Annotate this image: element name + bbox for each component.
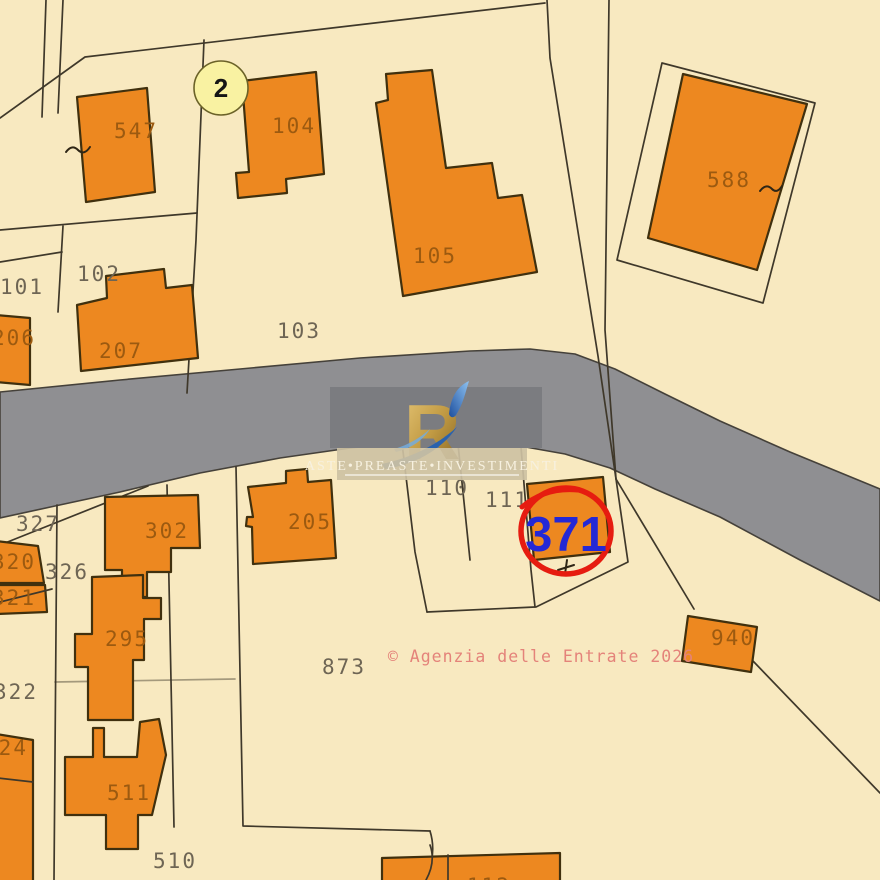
parcel-label: 510 [153,849,197,873]
cadastral-map: © Agenzia delle Entrate 2026 547 104 105… [0,0,880,880]
building-label: 324 [0,736,28,760]
building-label: 205 [288,510,332,534]
building-label: 588 [707,168,751,192]
building-label: 207 [99,339,143,363]
parcel-label: 322 [0,680,38,704]
parcel-label: 326 [45,560,89,584]
point-marker: 2 [194,61,248,115]
watermark-brand-text: ASTE•PREASTE•INVESTIMENTI [305,459,559,474]
building-label: 105 [413,244,457,268]
building-547 [77,88,155,202]
parcel-label: 103 [277,319,321,343]
parcel-label: 327 [16,512,60,536]
highlight-parcel-number: 371 [525,508,607,562]
building-label: 295 [105,627,149,651]
marker-number: 2 [214,73,228,103]
brand-watermark: R ASTE•PREASTE•INVESTIMENTI [305,381,559,480]
building-label: 112 [467,874,511,880]
building-label: 206 [0,326,36,350]
building-label: 321 [0,586,36,610]
map-canvas: © Agenzia delle Entrate 2026 547 104 105… [0,0,880,880]
parcel-label: 101 [0,275,44,299]
building-label: 940 [711,626,755,650]
building-label: 511 [107,781,151,805]
building-label: 104 [272,114,316,138]
parcel-label: 102 [77,262,121,286]
parcel-label: 873 [322,655,366,679]
building-label: 547 [114,119,158,143]
building-label: 302 [145,519,189,543]
copyright-watermark: © Agenzia delle Entrate 2026 [388,647,694,666]
building-label: 320 [0,550,36,574]
